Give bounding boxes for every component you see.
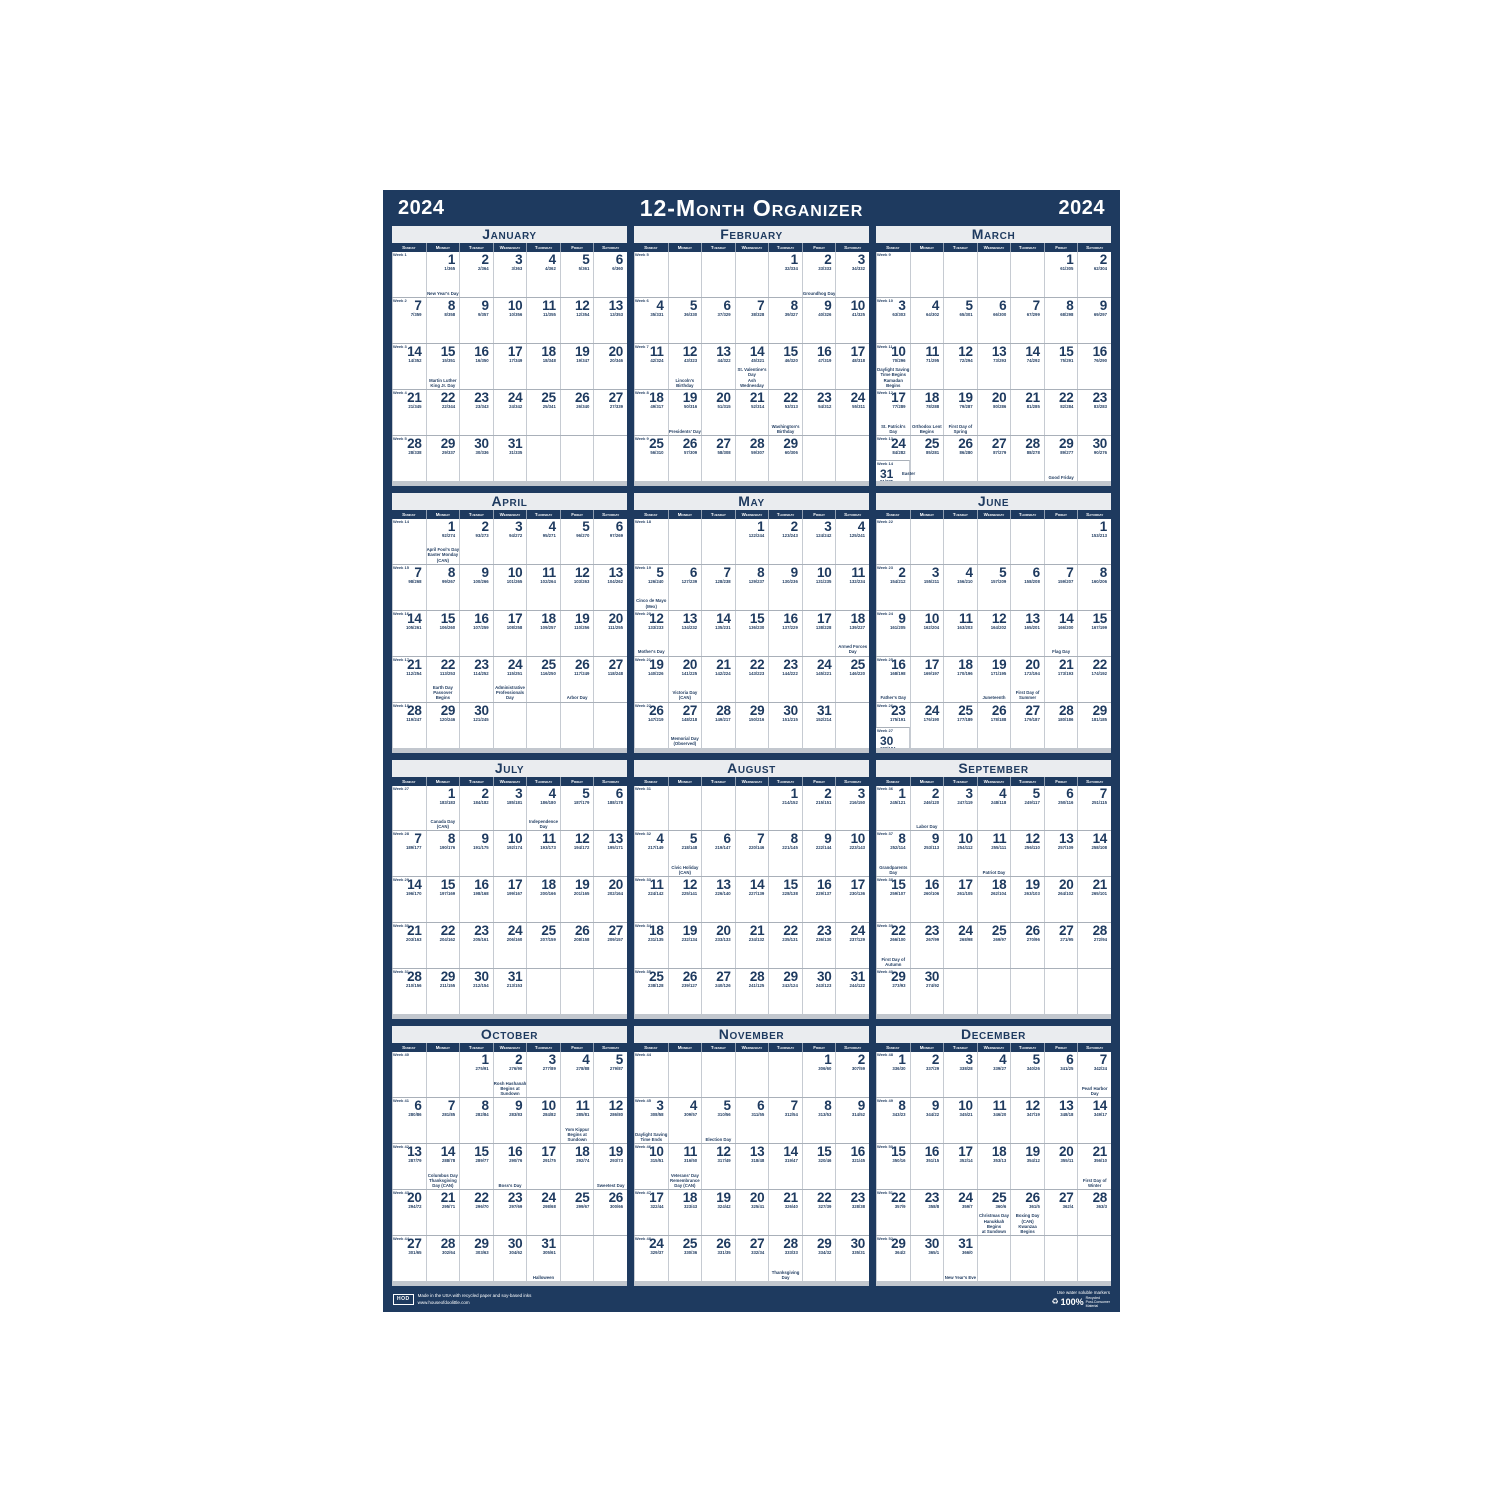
date-number: 29 <box>441 704 455 718</box>
date-cell: 13134/232 <box>668 611 702 656</box>
julian-date: 192/174 <box>507 846 523 850</box>
julian-date: 110/256 <box>574 626 589 630</box>
date-cell: 2960/306 <box>768 436 802 481</box>
date-cell <box>701 786 735 831</box>
date-cell: 5187/179 <box>560 786 594 831</box>
date-number: 26 <box>992 704 1006 718</box>
date-cell: 19232/134 <box>668 923 702 968</box>
day-header: Saturday <box>1077 1043 1111 1052</box>
julian-date: 143/223 <box>749 672 765 676</box>
date-cell: 30304/62 <box>493 1236 527 1281</box>
day-header: Tuesday <box>459 243 493 252</box>
week-row: Week 4427301/6528302/6429303/6330304/623… <box>392 1235 627 1281</box>
date-cell: 31366/0New Year's Eve <box>943 1236 977 1281</box>
date-number: 29 <box>1059 437 1073 451</box>
julian-date: 202/164 <box>607 892 623 896</box>
date-cell: 23205/161 <box>459 923 493 968</box>
date-cell: 2323/343 <box>459 390 493 435</box>
date-number: 19 <box>716 1191 730 1205</box>
date-cell: 1647/319 <box>802 344 836 389</box>
julian-date: 306/60 <box>818 1067 831 1071</box>
julian-date: 107/259 <box>473 626 489 630</box>
date-number: 3 <box>858 787 865 801</box>
date-number: 6 <box>723 299 730 313</box>
julian-date: 4/362 <box>545 267 556 271</box>
date-number: 19 <box>683 924 697 938</box>
holiday-label: Good Friday <box>1045 475 1078 480</box>
julian-date: 54/312 <box>818 405 831 409</box>
julian-date: 180/186 <box>1058 718 1074 722</box>
date-cell: 7220/146 <box>735 831 769 876</box>
holiday-label: Daylight Saving Time Ends <box>635 1132 668 1142</box>
date-cell: 27332/34 <box>735 1236 769 1281</box>
date-number: 31 <box>541 1237 555 1251</box>
date-cell: 767/299 <box>1010 298 1044 343</box>
date-cell: 1122/244 <box>735 519 769 564</box>
date-cell <box>1010 519 1044 564</box>
date-number: 1 <box>448 520 455 534</box>
julian-date: 53/313 <box>785 405 798 409</box>
date-number: 4 <box>549 253 556 267</box>
date-number: 2 <box>515 1053 522 1067</box>
week-row: Week 416280/867281/858282/849283/8310284… <box>392 1097 627 1143</box>
date-number: 8 <box>448 566 455 580</box>
date-cell: 26178/188 <box>977 703 1011 748</box>
week-row: Week 195126/240Cinco de Mayo (Mex)6127/2… <box>634 564 869 610</box>
date-cell: 6311/55 <box>735 1098 769 1143</box>
day-header: Monday <box>910 777 944 786</box>
day-header: Wednesday <box>735 510 769 519</box>
week-row: Week 441306/602307/59 <box>634 1052 869 1097</box>
date-cell: 3090/276 <box>1077 436 1111 481</box>
date-number: 7 <box>1066 566 1073 580</box>
julian-date: 207/159 <box>540 938 556 942</box>
date-cell: 13318/48 <box>735 1144 769 1189</box>
date-number: 5 <box>582 520 589 534</box>
date-cell: 25116/250 <box>526 657 560 702</box>
day-header: Monday <box>426 1043 460 1052</box>
julian-date: 316/50 <box>684 1159 697 1163</box>
date-number: 11 <box>542 832 556 846</box>
week-row: Week 1721112/25422113/253Earth DayPassov… <box>392 656 627 702</box>
julian-date: 134/232 <box>682 626 698 630</box>
holiday-label: St. Valentine's DayAsh Wednesday <box>736 367 769 388</box>
date-number: 11 <box>650 878 664 892</box>
date-number: 16 <box>474 345 488 359</box>
date-cell: 28333/33Thanksgiving Day <box>768 1236 802 1281</box>
julian-date: 66/300 <box>993 313 1006 317</box>
date-cell: 25360/6Christmas DayHanukkah Beginsat Su… <box>977 1190 1011 1235</box>
date-cell: 13165/201 <box>1010 611 1044 656</box>
date-number: 29 <box>474 1237 488 1251</box>
date-cell: 11346/20 <box>977 1098 1011 1143</box>
day-of-week-header: SundayMondayTuesdayWednesdayThursdayFrid… <box>634 510 869 519</box>
date-cell: 4339/27 <box>977 1052 1011 1097</box>
date-number: 11 <box>650 345 664 359</box>
date-cell: 21234/132 <box>735 923 769 968</box>
date-cell: 7189/177 <box>392 831 426 876</box>
date-number: 23 <box>474 924 488 938</box>
date-number: 1 <box>481 1053 488 1067</box>
julian-date: 173/193 <box>1058 672 1074 676</box>
julian-date: 38/328 <box>751 313 764 317</box>
date-number: 3 <box>965 1053 972 1067</box>
date-cell: 18323/43 <box>668 1190 702 1235</box>
julian-date: 237/129 <box>849 938 865 942</box>
date-number: 19 <box>1025 1145 1039 1159</box>
weeks-area: Week 5132/334233/333Groundhog Day334/332… <box>634 252 869 481</box>
day-header: Friday <box>802 243 836 252</box>
holiday-label: Civic Holiday (CAN) <box>669 865 702 875</box>
julian-date: 310/56 <box>718 1113 731 1117</box>
julian-date: 36/330 <box>684 313 697 317</box>
date-number: 21 <box>1093 878 1107 892</box>
julian-date: 139/227 <box>849 626 865 630</box>
julian-date: 232/134 <box>682 938 698 942</box>
date-cell: 20294/72 <box>392 1190 426 1235</box>
date-cell: 394/272 <box>493 519 527 564</box>
date-cell: 8343/23 <box>876 1098 910 1143</box>
date-number: 28 <box>441 1237 455 1251</box>
date-number: 16 <box>891 658 905 672</box>
week-row: Week 111070/296Daylight Saving Time Begi… <box>876 343 1111 389</box>
date-number: 17 <box>958 1145 972 1159</box>
date-cell: 27209/157 <box>593 923 627 968</box>
julian-date: 338/28 <box>960 1067 973 1071</box>
date-cell: 4186/180Independence Day <box>526 786 560 831</box>
recycle-line: Material <box>1086 1304 1110 1308</box>
date-cell: 9344/22 <box>910 1098 944 1143</box>
julian-date: 311/55 <box>751 1113 764 1117</box>
julian-date: 73/293 <box>993 359 1006 363</box>
date-number: 30 <box>474 704 488 718</box>
date-number: 9 <box>858 1099 865 1113</box>
date-number: 7 <box>1033 299 1040 313</box>
date-cell: 30335/31 <box>835 1236 869 1281</box>
date-number: 7 <box>757 299 764 313</box>
julian-date: 6/360 <box>612 267 623 271</box>
week-row: Week 5132/334233/333Groundhog Day334/332 <box>634 252 869 297</box>
date-number: 30 <box>925 970 939 984</box>
week-row: Week 2914196/17015197/16916198/16817199/… <box>392 876 627 922</box>
weeks-area: Week 401275/912276/90Rosh HashanahBegins… <box>392 1052 627 1281</box>
julian-date: 304/62 <box>509 1251 522 1255</box>
date-cell: 1041/325 <box>835 298 869 343</box>
julian-date: 200/166 <box>540 892 556 896</box>
week-row: Week 271183/183Canada Day (CAN)2184/1823… <box>392 786 627 831</box>
date-number: 26 <box>683 970 697 984</box>
date-cell: 30274/92 <box>910 969 944 1014</box>
julian-date: 58/308 <box>718 451 731 455</box>
julian-date: 121/245 <box>473 718 489 722</box>
julian-date: 203/163 <box>406 938 422 942</box>
julian-date: 190/176 <box>440 846 456 850</box>
date-cell: 10345/21 <box>943 1098 977 1143</box>
date-number: 13 <box>609 566 623 580</box>
week-row: Week 42121/3452222/3442323/3432424/34225… <box>392 389 627 435</box>
date-number: 9 <box>1100 299 1107 313</box>
date-cell: 20141/225Victoria Day (CAN) <box>668 657 702 702</box>
week-row: Week 2012133/233Mother's Day13134/232141… <box>634 610 869 656</box>
julian-date: 236/130 <box>816 938 832 942</box>
julian-date: 123/243 <box>782 534 798 538</box>
julian-date: 14/352 <box>408 359 421 363</box>
date-cell: 13195/171 <box>593 831 627 876</box>
julian-date: 74/292 <box>1027 359 1040 363</box>
week-row: Week 2226147/21927148/218Memorial Day (O… <box>634 702 869 748</box>
date-number: 18 <box>541 345 555 359</box>
julian-date: 117/249 <box>574 672 589 676</box>
julian-date: 115/251 <box>507 672 522 676</box>
julian-date: 349/17 <box>1094 1113 1107 1117</box>
day-header: Monday <box>426 243 460 252</box>
date-number: 3 <box>515 253 522 267</box>
julian-date: 194/172 <box>574 846 590 850</box>
julian-date: 324/42 <box>718 1205 731 1209</box>
date-cell <box>735 786 769 831</box>
julian-date: 99/267 <box>442 580 455 584</box>
date-number: 2 <box>932 1053 939 1067</box>
day-header: Monday <box>910 243 944 252</box>
week-number-label: Week 35 <box>635 970 651 974</box>
date-number: 6 <box>616 787 623 801</box>
date-number: 26 <box>649 704 663 718</box>
date-number: 6 <box>999 299 1006 313</box>
date-cell: 940/326 <box>802 298 836 343</box>
julian-date: 308/58 <box>650 1113 663 1117</box>
week-row: Week 4610315/5111316/50Veterans' DayReme… <box>634 1143 869 1189</box>
julian-date: 231/135 <box>648 938 664 942</box>
week-number-label: Week 14 <box>877 462 893 466</box>
date-number: 25 <box>541 391 555 405</box>
week-row: Week 361245/1212246/120Labor Day3247/119… <box>876 786 1111 831</box>
date-cell: 1546/320 <box>768 344 802 389</box>
date-cell <box>426 1052 460 1097</box>
date-cell <box>943 519 977 564</box>
date-number: 5 <box>690 299 697 313</box>
date-number: 25 <box>575 1191 589 1205</box>
date-cell: 3308/58Daylight Saving Time Ends <box>634 1098 668 1143</box>
week-row: Week 3021203/16322204/16223205/16124206/… <box>392 922 627 968</box>
day-header: Monday <box>668 243 702 252</box>
date-cell: 4156/210 <box>943 565 977 610</box>
julian-date: 204/162 <box>440 938 456 942</box>
day-header: Sunday <box>634 1043 668 1052</box>
date-number: 1 <box>1100 520 1107 534</box>
date-number: 11 <box>993 1099 1007 1113</box>
date-number: 14 <box>407 878 421 892</box>
julian-date: 155/211 <box>924 580 939 584</box>
julian-date: 37/329 <box>718 313 731 317</box>
day-header: Wednesday <box>735 243 769 252</box>
julian-date: 330/36 <box>684 1251 697 1255</box>
date-number: 8 <box>757 566 764 580</box>
week-number-label: Week 21 <box>635 658 651 662</box>
date-cell: 1344/322 <box>701 344 735 389</box>
week-number-label: Week 30 <box>393 924 409 928</box>
date-cell: 16290/76Boss's Day <box>493 1144 527 1189</box>
day-header: Tuesday <box>459 777 493 786</box>
date-cell: 2383/283 <box>1077 390 1111 435</box>
overflow-date-cell: Week 2730182/184 <box>876 727 910 748</box>
date-number: 18 <box>575 1145 589 1159</box>
date-number: 14 <box>783 1145 797 1159</box>
week-number-label: Week 4 <box>393 391 407 395</box>
date-cell <box>835 436 869 481</box>
date-cell: 868/298 <box>1044 298 1078 343</box>
date-cell: 18170/196 <box>943 657 977 702</box>
date-number: 22 <box>1059 391 1073 405</box>
julian-date: 198/168 <box>473 892 489 896</box>
date-number: 4 <box>549 520 556 534</box>
julian-date: 341/25 <box>1060 1067 1073 1071</box>
julian-date: 364/2 <box>895 1251 906 1255</box>
julian-date: 78/288 <box>926 405 939 409</box>
date-cell: 12256/110 <box>1010 831 1044 876</box>
julian-date: 273/93 <box>892 984 905 988</box>
julian-date: 131/235 <box>816 580 832 584</box>
date-cell: 1979/287First Day of Spring <box>943 390 977 435</box>
date-cell <box>802 436 836 481</box>
date-cell <box>977 519 1011 564</box>
date-number: 14 <box>1093 1099 1107 1113</box>
date-cell: 12317/49 <box>701 1144 735 1189</box>
date-cell: 25330/36 <box>668 1236 702 1281</box>
date-cell: 1313/353 <box>593 298 627 343</box>
date-cell: 20264/102 <box>1044 877 1078 922</box>
day-of-week-header: SundayMondayTuesdayWednesdayThursdayFrid… <box>876 1043 1111 1052</box>
week-row: Week 5229364/230365/131366/0New Year's E… <box>876 1235 1111 1281</box>
julian-date: 268/98 <box>960 938 973 942</box>
month-title: June <box>876 493 1111 510</box>
date-cell: 13226/140 <box>701 877 735 922</box>
julian-date: 220/146 <box>749 846 765 850</box>
day-header: Saturday <box>835 1043 869 1052</box>
julian-date: 252/114 <box>890 846 905 850</box>
weeks-area: Week 311214/1522215/1513216/150Week 3242… <box>634 786 869 1015</box>
date-cell: 1474/292 <box>1010 344 1044 389</box>
day-header: Sunday <box>876 243 910 252</box>
holiday-label: Boss's Day <box>494 1183 527 1188</box>
julian-date: 170/196 <box>957 672 973 676</box>
date-cell: 28363/3 <box>1077 1190 1111 1235</box>
date-number: 29 <box>1093 704 1107 718</box>
date-number: 14 <box>441 1145 455 1159</box>
holiday-label: Independence Day <box>527 819 560 829</box>
date-cell: 25299/67 <box>560 1190 594 1235</box>
julian-date: 199/167 <box>507 892 523 896</box>
week-row: Week 132484/282Palm Sunday2585/2812686/2… <box>876 435 1111 481</box>
julian-date: 93/273 <box>476 534 489 538</box>
date-number: 23 <box>474 391 488 405</box>
date-cell: 2354/312 <box>802 390 836 435</box>
date-cell: 24206/160 <box>493 923 527 968</box>
julian-date: 259/107 <box>890 892 906 896</box>
date-number: 22 <box>474 1191 488 1205</box>
julian-date: 305/61 <box>543 1251 556 1255</box>
date-number: 17 <box>817 612 831 626</box>
date-number: 27 <box>750 1237 764 1251</box>
julian-date: 227/139 <box>749 892 765 896</box>
date-cell: 7251/115 <box>1077 786 1111 831</box>
julian-date: 169/197 <box>924 672 940 676</box>
date-number: 7 <box>757 832 764 846</box>
julian-date: 357/9 <box>895 1205 906 1209</box>
julian-date: 193/173 <box>540 846 556 850</box>
day-of-week-header: SundayMondayTuesdayWednesdayThursdayFrid… <box>634 1043 869 1052</box>
julian-date: 301/65 <box>408 1251 421 1255</box>
date-number: 11 <box>542 299 556 313</box>
date-cell: 31244/122 <box>835 969 869 1014</box>
julian-date: 30/336 <box>476 451 489 455</box>
date-number: 5 <box>723 1099 730 1113</box>
julian-date: 269/97 <box>993 938 1006 942</box>
date-cell: 9130/236 <box>768 565 802 610</box>
footer-markers-note: Use water soluble markers <box>1057 1290 1110 1295</box>
date-cell <box>910 519 944 564</box>
date-cell <box>1010 252 1044 297</box>
date-number: 8 <box>898 832 905 846</box>
date-number: 11 <box>576 1099 590 1113</box>
date-number: 12 <box>609 1099 623 1113</box>
date-cell: 16107/259 <box>459 611 493 656</box>
julian-date: 124/242 <box>816 534 832 538</box>
week-number-label: Week 19 <box>635 566 651 570</box>
date-cell: 363/303 <box>876 298 910 343</box>
date-number: 30 <box>508 1237 522 1251</box>
date-number: 13 <box>407 1145 421 1159</box>
day-header: Saturday <box>593 510 627 519</box>
julian-date: 159/207 <box>1058 580 1074 584</box>
date-cell: 18139/227Armed Forces Day <box>835 611 869 656</box>
week-row: Week 31414/3521515/351Martin Luther King… <box>392 343 627 389</box>
date-cell: 26208/158 <box>560 923 594 968</box>
date-cell: 11163/203 <box>943 611 977 656</box>
holiday-label: First Day of Spring <box>944 424 977 434</box>
date-cell: 20233/133 <box>701 923 735 968</box>
julian-date: 148/218 <box>682 718 698 722</box>
date-number: 2 <box>898 566 905 580</box>
julian-date: 1/365 <box>444 267 455 271</box>
holiday-label: Martin Luther King Jr. Day <box>427 378 460 388</box>
date-cell <box>735 252 769 297</box>
date-cell <box>1010 1236 1044 1281</box>
julian-date: 353/13 <box>993 1159 1006 1163</box>
date-number: 16 <box>851 1145 865 1159</box>
julian-date: 177/189 <box>957 718 973 722</box>
date-cell: 23236/130 <box>802 923 836 968</box>
month-title: October <box>392 1026 627 1043</box>
month-october: OctoberSundayMondayTuesdayWednesdayThurs… <box>392 1026 627 1286</box>
month-title: April <box>392 493 627 510</box>
julian-date: 2/364 <box>478 267 489 271</box>
week-row: Week 3418231/13519232/13420233/13321234/… <box>634 922 869 968</box>
date-number: 24 <box>649 1237 663 1251</box>
julian-date: 288/78 <box>442 1159 455 1163</box>
month-august: AugustSundayMondayTuesdayWednesdayThursd… <box>634 760 869 1020</box>
julian-date: 29/337 <box>442 451 455 455</box>
julian-date: 285/81 <box>576 1113 589 1117</box>
date-number: 10 <box>817 566 831 580</box>
month-title: May <box>634 493 869 510</box>
day-header: Friday <box>560 1043 594 1052</box>
julian-date: 28/338 <box>408 451 421 455</box>
week-row: Week 1614105/26115106/26016107/25917108/… <box>392 610 627 656</box>
julian-date: 24/342 <box>509 405 522 409</box>
date-cell: 22113/253Earth DayPassover Begins <box>426 657 460 702</box>
month-title: August <box>634 760 869 777</box>
date-cell: 666/300 <box>977 298 1011 343</box>
